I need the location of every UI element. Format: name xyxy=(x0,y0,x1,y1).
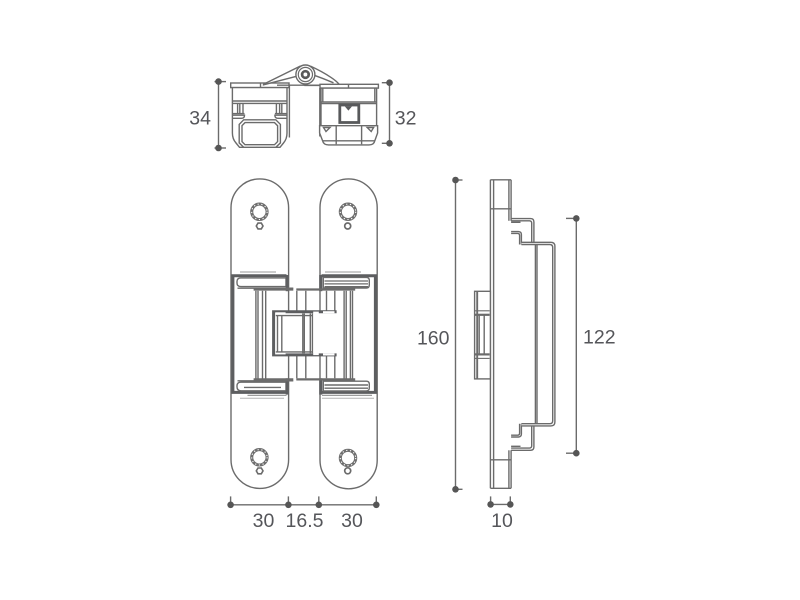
svg-text:34: 34 xyxy=(189,108,211,130)
svg-text:30: 30 xyxy=(341,510,363,532)
svg-text:10: 10 xyxy=(491,510,513,532)
svg-text:122: 122 xyxy=(583,327,616,349)
svg-text:16.5: 16.5 xyxy=(286,510,324,532)
svg-text:32: 32 xyxy=(395,108,417,130)
svg-text:30: 30 xyxy=(253,510,275,532)
svg-text:160: 160 xyxy=(417,328,450,350)
